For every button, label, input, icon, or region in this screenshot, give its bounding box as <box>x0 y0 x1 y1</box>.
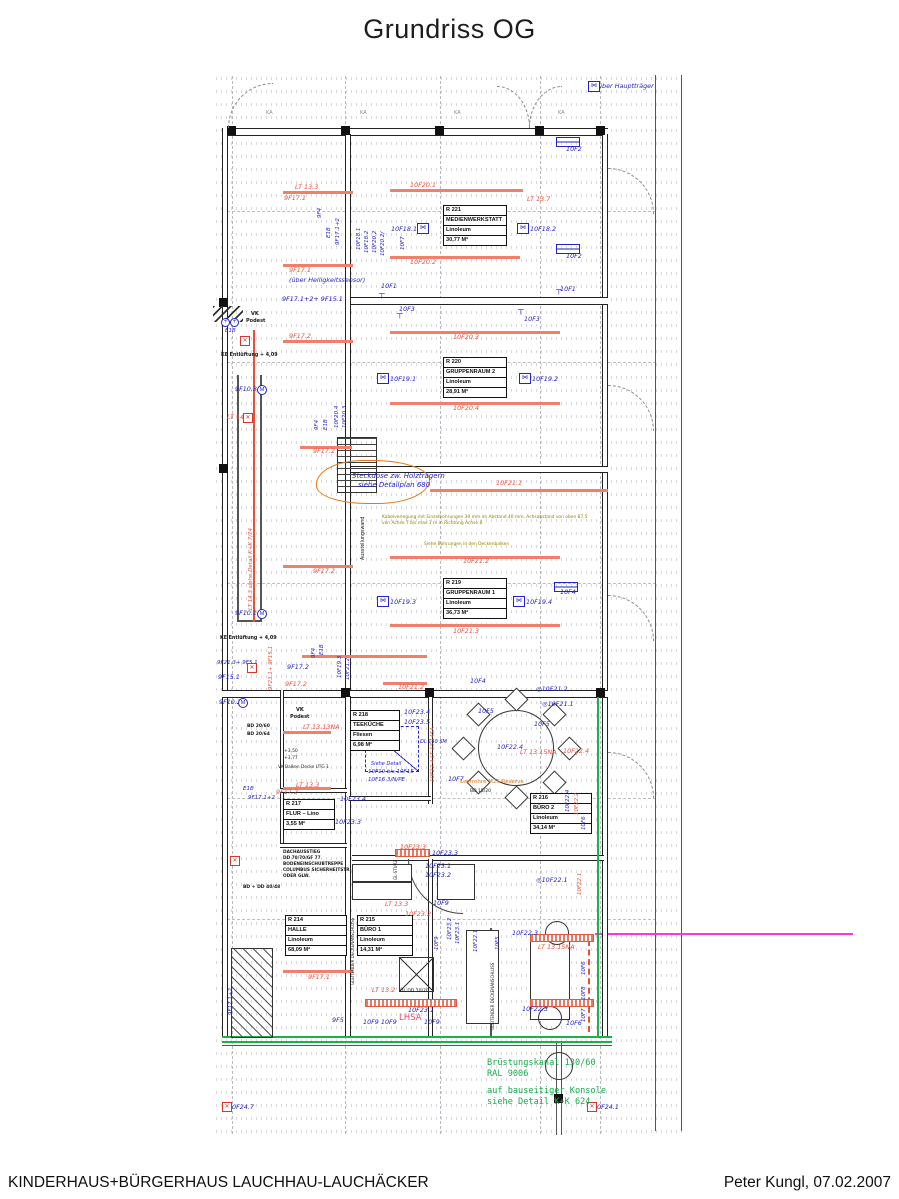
annotation-label: 9F4 <box>312 648 318 658</box>
room-box-row: R 221 <box>444 206 506 215</box>
haxis <box>222 362 656 363</box>
annotation-label: KA <box>266 111 273 116</box>
annotation-label: VK <box>296 708 304 713</box>
annotation-label: (über Helligkeitssensor) <box>289 277 365 283</box>
xbox-icon: ✕ <box>230 856 240 866</box>
annotation-label: 9F17.1 <box>289 267 311 273</box>
annotation-label: 10F23.3 <box>432 850 458 856</box>
annotation-label: 10F23.5 <box>404 719 430 725</box>
room-box-row: R 214 <box>286 916 346 925</box>
annotation-label: 10F4 <box>470 678 486 684</box>
annotation-label: 9F17.1+2 <box>336 218 342 245</box>
window-icon: ⋈ <box>377 596 389 607</box>
xbox-icon: ✕ <box>222 1102 232 1112</box>
parapet-note-line: siehe Detail K+K 624 <box>487 1097 606 1108</box>
annotation-label: 10F20.4 <box>335 406 341 428</box>
thin <box>681 75 682 1131</box>
rline <box>390 189 523 192</box>
floor-plan: R 221MEDIENWERKSTATTLinoleum30,77 M²R 22… <box>0 0 899 1199</box>
annotation-label: LT 14.3 siehe Detail K+K 7/74 <box>249 528 255 610</box>
room-box-r-221: R 221MEDIENWERKSTATTLinoleum30,77 M² <box>443 205 507 246</box>
annotation-label: 9F17.1+2 <box>248 796 275 802</box>
annotation-label: 10F9 10F9 <box>363 1019 397 1025</box>
parapet-note-line: RAL 9006 <box>487 1069 606 1080</box>
annotation-label: BODENEINSCHUBTREPPE <box>283 863 343 867</box>
room-box-row: Linoleum <box>286 935 346 945</box>
annotation-label: 10F20.2 <box>373 231 379 253</box>
room-box-row: R 216 <box>531 794 591 803</box>
annotation-label: 10F3 <box>524 316 540 322</box>
annotation-label: 9F5 <box>332 1017 344 1023</box>
annotation-label: Siehe Detail <box>371 762 401 767</box>
annotation-label: VK <box>251 312 259 317</box>
window-icon: ⋈ <box>519 373 531 384</box>
annotation-label: 9F17.1+2+ 9F15.1 <box>282 296 343 302</box>
haxis <box>222 211 656 212</box>
annotation-label: 10F19.3 <box>390 599 416 605</box>
annotation-label: BD + DD 40/48 <box>243 886 280 891</box>
annotation-label: 10F21.3 <box>453 628 479 634</box>
xbox-icon: ✕ <box>247 663 257 673</box>
annotation-label: LHSA <box>399 1014 422 1023</box>
thin <box>260 375 262 622</box>
annotation-label: über Hauptträger <box>598 83 654 89</box>
annotation-label: 10F21.1 <box>496 480 522 486</box>
annotation-label: 10F23.4 <box>340 796 366 802</box>
annotation-label: LT 13.15NA <box>520 749 557 755</box>
tsym-icon: ┬ <box>379 290 385 298</box>
wv <box>602 134 608 1038</box>
col <box>425 688 434 697</box>
annotation-label: 10F20.2 <box>410 259 436 265</box>
annotation-label: E1B <box>324 419 330 430</box>
annotation-label: +3,50 <box>284 750 298 755</box>
room-box-row: MEDIENWERKSTATT <box>444 215 506 225</box>
annotation-label: KA <box>454 111 461 116</box>
annotation-label: 9F17.1 <box>308 974 330 980</box>
col <box>596 688 605 697</box>
annotation-label: 9F4 <box>318 208 324 218</box>
annotation-label: 10F19.3 <box>338 656 344 678</box>
room-box-row: FLUR – Lino <box>284 809 334 819</box>
annotation-label: DACHAUSSTIEG <box>283 851 320 855</box>
oplus-icon: + <box>230 318 239 327</box>
annotation-label: Ausstellungswand <box>362 517 367 560</box>
annotation-label: 10F23.3 <box>400 844 426 850</box>
annotation-label: 9F10.1 <box>235 610 257 616</box>
annotation-label: 10F18.1 <box>391 226 417 232</box>
annotation-label: 9F23.1+ 9F15.1 <box>269 646 275 690</box>
hatchbar <box>530 934 594 942</box>
annotation-label: LT 13.3 <box>296 782 319 788</box>
annotation-label: 10F22.4 <box>563 748 589 754</box>
col <box>435 126 444 135</box>
annotation-label: Steckdose zw. Holzträgern <box>352 473 445 480</box>
annotation-label: 10F23.4 <box>404 709 430 715</box>
annotation-label: GLEITENDER DECKENANSCHLUSS <box>491 963 495 1030</box>
annotation-label: 10F20.4 <box>453 405 479 411</box>
annotation-label: LT 13.3 <box>295 184 318 190</box>
w <box>352 855 604 861</box>
annotation-label: 10F9 <box>435 936 441 950</box>
window-icon: ⋈ <box>417 223 429 234</box>
w <box>280 843 347 848</box>
annotation-label: +3,77 <box>284 757 298 762</box>
annotation-label: ODER GLW. <box>283 875 310 879</box>
room-box-row: 14,31 M² <box>358 945 412 955</box>
tsym-icon: ┬ <box>397 310 403 318</box>
annotation-label: BD 20/64 <box>247 733 270 738</box>
parapet-duct-right <box>597 690 599 1038</box>
axis <box>440 76 441 1134</box>
annotation-label: von Achse 7 bis max 1 m in Richtung Achs… <box>382 522 482 526</box>
annotation-label: ◎10F22.1 <box>536 877 568 883</box>
annotation-label: ◎10F21.1 <box>542 701 574 707</box>
room-box-row: 6,98 M² <box>351 740 399 750</box>
parapet-note-line: Brüstungskanal 130/60 <box>487 1058 606 1069</box>
annotation-label: 10F9 <box>424 1019 440 1025</box>
window-icon: ⋈ <box>513 596 525 607</box>
annotation-label: 10F19.1 <box>390 376 416 382</box>
drawing-sheet: Grundriss OG <box>0 0 899 1199</box>
annotation-label: 9F17.1+2 <box>229 988 235 1015</box>
room-box-row: 68,09 M² <box>286 945 346 955</box>
annotation-label: E1B <box>225 329 236 335</box>
room-box-r-217: R 217FLUR – Lino3,55 M² <box>283 799 335 830</box>
tsym-icon: ┬ <box>556 286 562 294</box>
annotation-label: 10F6 <box>566 1020 582 1026</box>
room-box-row: BÜRO 2 <box>531 803 591 813</box>
annotation-label: 10F8 <box>582 986 588 1000</box>
annotation-label: E1B <box>327 227 333 238</box>
window-icon: ⋈ <box>377 373 389 384</box>
room-box-row: R 220 <box>444 358 506 367</box>
room-box-row: R 219 <box>444 579 506 588</box>
annotation-label: GL-STURZ <box>394 860 398 880</box>
rdash <box>588 940 590 1032</box>
room-box-row: 3,55 M² <box>284 819 334 829</box>
axis <box>600 76 601 1134</box>
annotation-label: Leerrohre M25 Reserve <box>460 780 524 786</box>
col <box>596 126 605 135</box>
annotation-label: 10F7 <box>582 1008 588 1022</box>
annotation-label: 9F17.1 <box>284 195 306 201</box>
annotation-label: 9F17.2 <box>313 568 335 574</box>
annotation-label: 10F23.2 <box>405 911 431 917</box>
annotation-label: KE Entlüftung + 4,09 <box>220 637 277 642</box>
annotation-label: 10F6 <box>582 961 588 975</box>
annotation-label: 10F19.2 <box>532 376 558 382</box>
annotation-label: 10F23.1 <box>425 863 451 869</box>
room-box-row: Fliesen <box>351 730 399 740</box>
annotation-label: 10F20.2/ <box>381 232 387 256</box>
annotation-label: 10F18.1 <box>357 228 363 250</box>
window-icon: ⋈ <box>517 223 529 234</box>
room-box-row: Linoleum <box>444 377 506 387</box>
project-name: KINDERHAUS+BÜRGERHAUS LAUCHHAU-LAUCHÄCKE… <box>8 1174 429 1192</box>
room-box-r-219: R 219GRUPPENRAUM 1Linoleum36,73 M² <box>443 578 507 619</box>
annotation-label: 10F23.3 <box>335 819 361 825</box>
annotation-label: KA <box>360 111 367 116</box>
gline <box>222 1041 612 1043</box>
room-box-row: GRUPPENRAUM 2 <box>444 367 506 377</box>
annotation-label: ◎10F21.2 <box>536 686 568 692</box>
wv <box>222 128 228 1038</box>
annotation-label: 9F17.2 <box>313 448 335 454</box>
annotation-label: 10F6 <box>582 816 588 830</box>
magenta-marker-line <box>595 933 853 935</box>
col <box>341 126 350 135</box>
annotation-label: 0F24.7 <box>232 1104 254 1110</box>
annotation-label: 10F5 <box>478 708 494 714</box>
room-box-r-218: R 218TEEKÜCHEFliesen6,98 M² <box>350 710 400 751</box>
annotation-label: 9F10.3 <box>235 386 257 392</box>
annotation-label: BD 15/20 <box>470 790 491 795</box>
annotation-label: COLUMBUS SICHERHEITSTR. <box>283 869 351 873</box>
room-box-row: Linoleum <box>444 225 506 235</box>
annotation-label: LT 13.7 <box>527 196 550 202</box>
roof-hatch <box>399 957 434 992</box>
room-box-row: HALLE <box>286 925 346 935</box>
window-icon: ⋈ <box>588 81 600 92</box>
motor-icon: M <box>257 609 267 619</box>
annotation-label: 9F4 <box>315 420 321 430</box>
annotation-label: LT 13.2 <box>372 987 395 993</box>
room-box-row: R 215 <box>358 916 412 925</box>
motor-icon: M <box>257 385 267 395</box>
annotation-label: 10F5 <box>534 721 550 727</box>
annotation-label: 9F17.2 <box>287 664 309 670</box>
rline <box>430 489 608 492</box>
oplus-icon: + <box>221 318 230 327</box>
radiator-icon <box>556 244 580 254</box>
annotation-label: DD 70/70/GF 77 <box>283 857 321 861</box>
motor-icon: M <box>238 698 248 708</box>
annotation-label: 9F17.2 <box>276 789 298 795</box>
annotation-label: 10F22.4 LT 13.14SA <box>431 727 437 782</box>
room-box-r-214: R 214HALLELinoleum68,09 M² <box>285 915 347 956</box>
haxis <box>222 583 656 584</box>
annotation-label: Podest <box>290 715 309 720</box>
annotation-label: 10F18.2 <box>365 231 371 253</box>
annotation-label: 10F23.2 <box>448 918 454 940</box>
staircase-lower <box>231 948 273 1038</box>
annotation-label: 10F22.3 <box>522 1006 548 1012</box>
col <box>219 464 228 473</box>
annotation-label: 10F21.2 <box>346 658 352 680</box>
annotation-label: 10F19.4 <box>526 599 552 605</box>
annotation-label: KA <box>558 111 565 116</box>
author-date: Peter Kungl, 07.02.2007 <box>724 1174 891 1192</box>
col <box>341 688 350 697</box>
annotation-label: GLEITENDER DECKENANSCHLUSS <box>351 918 355 985</box>
parapet-duct-bottom <box>222 1036 612 1038</box>
desk <box>352 882 412 900</box>
thin <box>655 75 656 1131</box>
annotation-label: Podest <box>246 319 265 324</box>
room-box-row: 30,77 M² <box>444 235 506 245</box>
annotation-label: siehe Detailplan 680 <box>358 482 430 489</box>
annotation-label: 10F7 <box>401 236 407 250</box>
annotation-label: 10F18.2 <box>530 226 556 232</box>
annotation-label: 9F17.2 <box>285 681 307 687</box>
radiator-icon <box>556 137 580 147</box>
annotation-label: BD 20/60 <box>247 725 270 730</box>
annotation-label: 9F15.1 <box>218 674 240 680</box>
rline <box>283 731 331 734</box>
annotation-label: 10F9 <box>433 900 449 906</box>
parapet-note-line: auf bauseitiger Konsole <box>487 1086 606 1097</box>
room-box-row: GRUPPENRAUM 1 <box>444 588 506 598</box>
room-box-row: 28,91 M² <box>444 387 506 397</box>
annotation-label: 10F22.2 <box>575 793 581 815</box>
annotation-label: 10F20.3 <box>343 406 349 428</box>
annotation-label: E1B <box>243 787 254 793</box>
annotation-label: Kabelverlegung mit Einzelbohrungen 30 mm… <box>382 516 587 520</box>
annotation-label: 10F22.4 <box>566 790 572 812</box>
xbox-icon: ✕ <box>240 336 250 346</box>
room-box-row: Linoleum <box>444 598 506 608</box>
annotation-label: 10F23.1 <box>456 922 462 944</box>
annotation-label: LT 13.3 <box>385 901 408 907</box>
xbox-icon: ✕ <box>243 413 253 423</box>
parapet-note: Brüstungskanal 130/60RAL 9006auf bauseit… <box>487 1058 606 1108</box>
annotation-label: 10F5 <box>496 936 502 950</box>
annotation-label: 10F22.3 <box>512 930 538 936</box>
room-box-row: Linoleum <box>358 935 412 945</box>
room-box-row: R 217 <box>284 800 334 809</box>
radiator-icon <box>554 582 578 592</box>
room-box-row: R 218 <box>351 711 399 720</box>
annotation-label: 10F21.2 <box>398 684 424 690</box>
annotation-label: 10F20.3 <box>453 334 479 340</box>
annotation-label: LT 13.15NA <box>538 944 575 950</box>
rline <box>302 655 427 658</box>
annotation-label: 10F20.1 <box>410 182 436 188</box>
annotation-label: 10F22.1 <box>474 930 480 952</box>
tsym-icon: ┬ <box>518 306 524 314</box>
annotation-label: 10F1 <box>560 286 576 292</box>
room-box-r-215: R 215BÜRO 1Linoleum14,31 M² <box>357 915 413 956</box>
annotation-label: 10F23.2 <box>425 872 451 878</box>
annotation-label: 9F17.2 <box>289 333 311 339</box>
rline <box>283 340 353 343</box>
annotation-label: 10F10 bis 10F15 <box>368 770 414 776</box>
annotation-label: DL DD 70/70 <box>400 990 429 995</box>
annotation-label: LT 13.13NA <box>303 724 340 730</box>
room-box-row: TEEKÜCHE <box>351 720 399 730</box>
annotation-label: 10F16 3/N/PE <box>368 778 405 784</box>
annotation-label: KE Entlüftung + 4,09 <box>221 354 278 359</box>
annotation-label: VK Balken Decke UTG 1 <box>278 766 329 770</box>
room-box-row: BÜRO 1 <box>358 925 412 935</box>
room-box-row: 36,73 M² <box>444 608 506 618</box>
annotation-label: 10F21.2 <box>463 558 489 564</box>
w <box>222 128 608 136</box>
room-box-r-220: R 220GRUPPENRAUM 2Linoleum28,91 M² <box>443 357 507 398</box>
thin <box>237 620 262 622</box>
thin <box>222 1045 612 1046</box>
annotation-label: Siehe Bohrungen in den Deckenbalken <box>424 543 509 547</box>
w <box>345 297 608 305</box>
annotation-label: E1B <box>320 644 326 655</box>
annotation-label: 10F22.1 <box>578 873 584 895</box>
desk <box>352 864 412 882</box>
